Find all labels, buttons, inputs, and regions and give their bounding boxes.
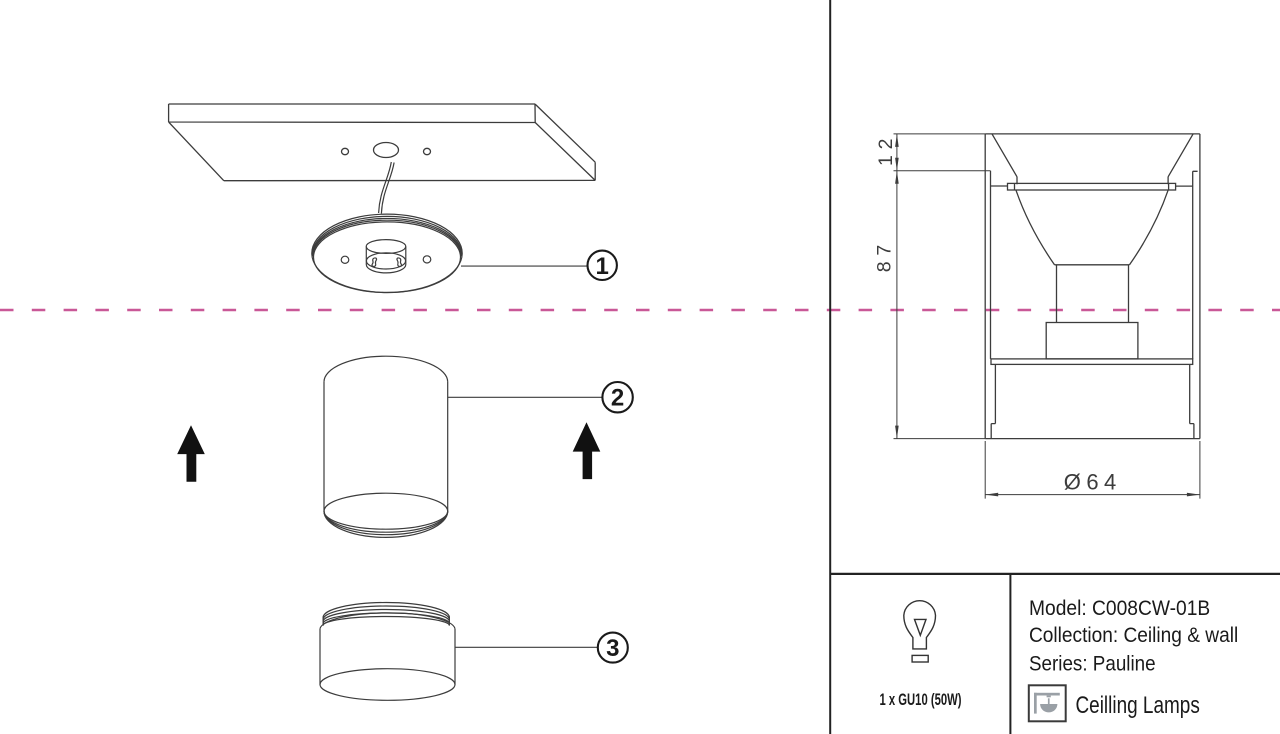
svg-text:Series: Pauline: Series: Pauline — [1029, 651, 1156, 675]
svg-text:Collection: Ceiling & wall: Collection: Ceiling & wall — [1029, 623, 1238, 647]
svg-text:Ceilling Lamps: Ceilling Lamps — [1076, 692, 1200, 719]
svg-text:1: 1 — [596, 253, 609, 280]
svg-text:Ø64: Ø64 — [1064, 470, 1117, 495]
svg-text:2: 2 — [611, 385, 624, 412]
svg-text:1 x GU10 (50W): 1 x GU10 (50W) — [880, 691, 962, 709]
svg-text:3: 3 — [606, 635, 619, 662]
svg-text:Model: C008CW-01B: Model: C008CW-01B — [1029, 596, 1210, 620]
